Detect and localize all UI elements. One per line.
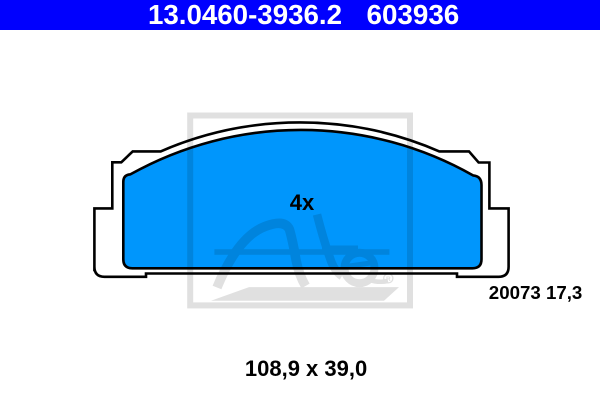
svg-text:4x: 4x xyxy=(290,190,315,215)
svg-text:20073 17,3: 20073 17,3 xyxy=(489,282,583,303)
svg-text:13.0460-3936.2: 13.0460-3936.2 xyxy=(148,0,342,30)
svg-text:108,9 x 39,0: 108,9 x 39,0 xyxy=(245,356,367,381)
svg-text:603936: 603936 xyxy=(367,0,460,30)
svg-text:R: R xyxy=(386,276,391,283)
